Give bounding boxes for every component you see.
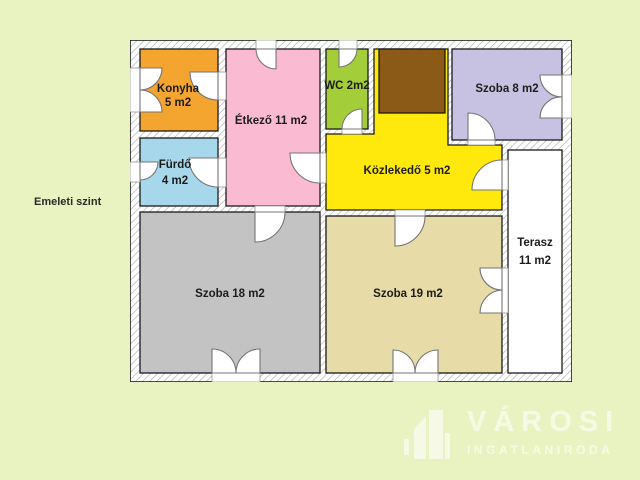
label-szoba19: Szoba 19 m2 <box>373 288 443 300</box>
city-buildings-icon <box>404 403 454 461</box>
floor-plan: Konyha 5 m2 Fürdő 4 m2 Étkező 11 m2 WC 2… <box>130 40 572 382</box>
label-konyha-name: Konyha <box>157 83 200 95</box>
label-terasz-name: Terasz <box>517 237 553 249</box>
label-furdo-name: Fürdő <box>159 159 192 171</box>
logo-subtitle: INGATLANIRODA <box>467 443 620 457</box>
label-terasz-area: 11 m2 <box>519 255 551 267</box>
stairwell <box>379 49 445 113</box>
floor-plan-drawing: Konyha 5 m2 Fürdő 4 m2 Étkező 11 m2 WC 2… <box>130 40 572 382</box>
label-szoba8: Szoba 8 m2 <box>475 83 538 95</box>
logo-brand: VÁROSI <box>467 408 620 437</box>
label-kozlekedo: Közlekedő 5 m2 <box>364 165 451 177</box>
label-konyha-area: 5 m2 <box>165 97 191 109</box>
floor-level-label: Emeleti szint <box>34 196 101 208</box>
label-wc: WC 2m2 <box>324 80 369 92</box>
room-etkezo <box>226 49 320 206</box>
label-furdo-area: 4 m2 <box>162 175 188 187</box>
agency-logo: VÁROSI INGATLANIRODA <box>404 399 620 461</box>
logo-text: VÁROSI INGATLANIRODA <box>467 399 620 457</box>
label-etkezo: Étkező 11 m2 <box>235 114 307 127</box>
label-szoba18: Szoba 18 m2 <box>195 288 265 300</box>
floorplan-page: Emeleti szint <box>0 0 640 480</box>
